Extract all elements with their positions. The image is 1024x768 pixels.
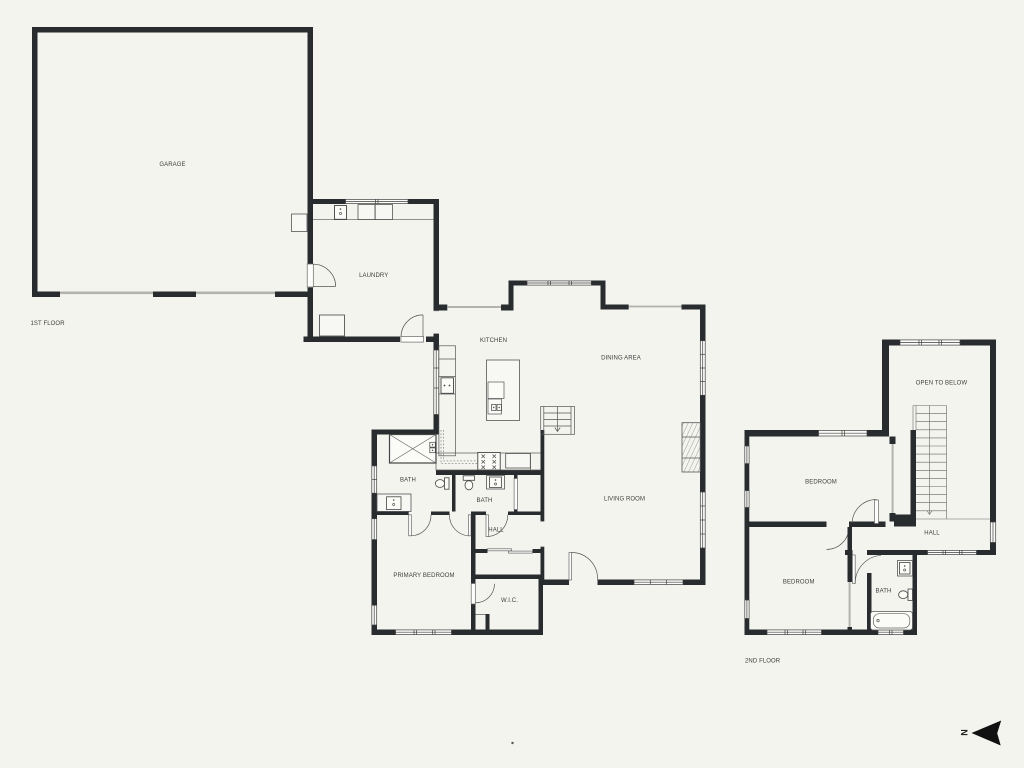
svg-text:BATH: BATH [876,589,892,595]
svg-text:BEDROOM: BEDROOM [805,480,837,486]
svg-text:BATH: BATH [477,498,493,504]
svg-text:2ND FLOOR: 2ND FLOOR [745,658,781,664]
svg-text:HALL: HALL [488,528,504,534]
svg-text:DINING AREA: DINING AREA [601,355,641,361]
svg-text:HALL: HALL [924,530,940,536]
svg-text:PRIMARY BEDROOM: PRIMARY BEDROOM [393,573,454,579]
svg-text:GARAGE: GARAGE [159,162,185,168]
svg-text:KITCHEN: KITCHEN [480,338,507,344]
svg-text:BATH: BATH [400,477,416,483]
svg-text:OPEN TO BELOW: OPEN TO BELOW [916,380,968,386]
svg-text:N: N [959,729,969,736]
svg-text:BEDROOM: BEDROOM [783,579,815,585]
svg-text:LAUNDRY: LAUNDRY [359,273,388,279]
svg-text:LIVING ROOM: LIVING ROOM [604,496,645,502]
svg-text:W.I.C.: W.I.C. [501,598,518,604]
svg-text:1ST FLOOR: 1ST FLOOR [31,321,66,327]
